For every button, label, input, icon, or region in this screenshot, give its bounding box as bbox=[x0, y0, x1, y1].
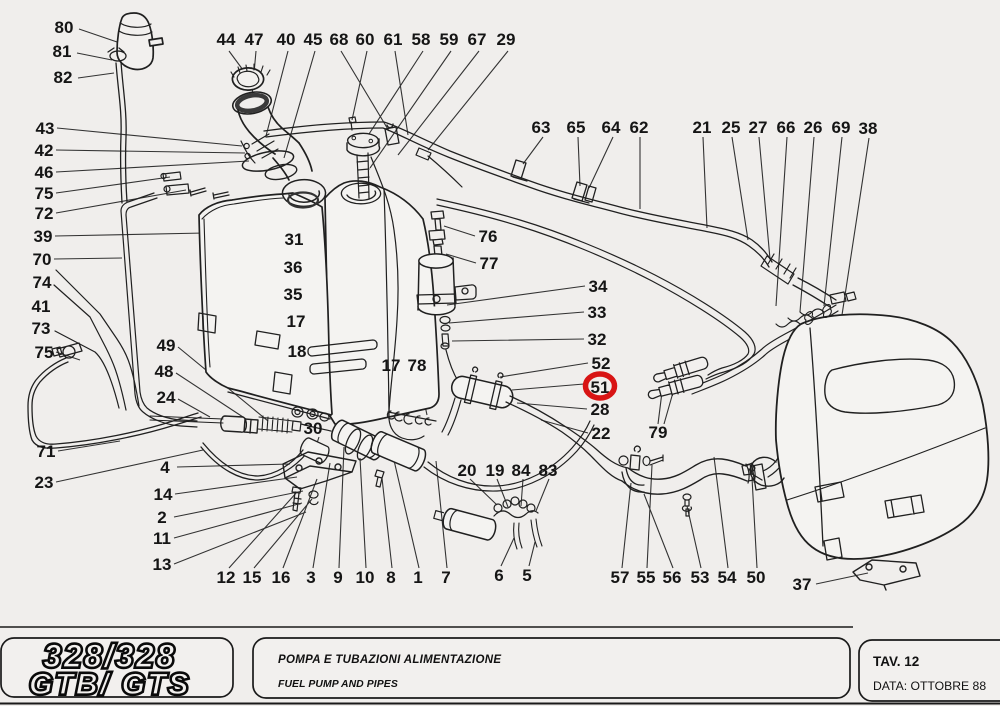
svg-text:32: 32 bbox=[588, 330, 607, 349]
svg-text:48: 48 bbox=[155, 362, 174, 381]
svg-text:83: 83 bbox=[539, 461, 558, 480]
svg-text:24: 24 bbox=[157, 388, 176, 407]
svg-text:68: 68 bbox=[330, 30, 349, 49]
svg-text:34: 34 bbox=[589, 277, 608, 296]
svg-text:69: 69 bbox=[832, 118, 851, 137]
svg-text:17: 17 bbox=[287, 312, 306, 331]
svg-text:63: 63 bbox=[532, 118, 551, 137]
svg-text:8: 8 bbox=[386, 568, 395, 587]
svg-text:81: 81 bbox=[53, 42, 72, 61]
svg-text:FUEL PUMP AND PIPES: FUEL PUMP AND PIPES bbox=[278, 679, 398, 690]
svg-text:75: 75 bbox=[35, 184, 54, 203]
svg-text:64: 64 bbox=[602, 118, 621, 137]
svg-text:47: 47 bbox=[245, 30, 264, 49]
svg-text:71: 71 bbox=[37, 442, 56, 461]
svg-text:14: 14 bbox=[154, 485, 173, 504]
svg-text:29: 29 bbox=[497, 30, 516, 49]
svg-text:5: 5 bbox=[522, 566, 531, 585]
svg-text:52: 52 bbox=[592, 354, 611, 373]
svg-text:49: 49 bbox=[157, 336, 176, 355]
svg-text:60: 60 bbox=[356, 30, 375, 49]
svg-text:65: 65 bbox=[567, 118, 586, 137]
svg-text:53: 53 bbox=[691, 568, 710, 587]
svg-text:7: 7 bbox=[441, 568, 450, 587]
svg-text:20: 20 bbox=[458, 461, 477, 480]
svg-text:POMPA E TUBAZIONI ALIMENTAZION: POMPA E TUBAZIONI ALIMENTAZIONE bbox=[278, 654, 501, 666]
svg-text:72: 72 bbox=[35, 204, 54, 223]
svg-text:67: 67 bbox=[468, 30, 487, 49]
svg-text:56: 56 bbox=[663, 568, 682, 587]
svg-text:DATA: OTTOBRE 88: DATA: OTTOBRE 88 bbox=[873, 679, 986, 693]
svg-text:25: 25 bbox=[722, 118, 741, 137]
svg-text:2: 2 bbox=[157, 508, 166, 527]
svg-text:57: 57 bbox=[611, 568, 630, 587]
svg-text:78: 78 bbox=[408, 356, 427, 375]
svg-text:21: 21 bbox=[693, 118, 712, 137]
svg-text:76: 76 bbox=[479, 227, 498, 246]
svg-text:59: 59 bbox=[440, 30, 459, 49]
svg-text:45: 45 bbox=[304, 30, 323, 49]
svg-text:44: 44 bbox=[217, 30, 236, 49]
svg-text:18: 18 bbox=[288, 342, 307, 361]
svg-text:77: 77 bbox=[480, 254, 499, 273]
svg-text:30: 30 bbox=[304, 419, 323, 438]
svg-text:43: 43 bbox=[36, 119, 55, 138]
svg-text:13: 13 bbox=[153, 555, 172, 574]
svg-text:35: 35 bbox=[284, 285, 303, 304]
svg-text:41: 41 bbox=[32, 297, 51, 316]
svg-text:28: 28 bbox=[591, 400, 610, 419]
svg-text:31: 31 bbox=[285, 230, 304, 249]
svg-text:54: 54 bbox=[718, 568, 737, 587]
svg-text:46: 46 bbox=[35, 163, 54, 182]
svg-text:6: 6 bbox=[494, 566, 503, 585]
svg-text:82: 82 bbox=[54, 68, 73, 87]
svg-text:GTB/ GTS: GTB/ GTS bbox=[29, 668, 191, 701]
svg-text:17: 17 bbox=[382, 356, 401, 375]
svg-text:62: 62 bbox=[630, 118, 649, 137]
svg-text:12: 12 bbox=[217, 568, 236, 587]
svg-text:19: 19 bbox=[486, 461, 505, 480]
svg-text:10: 10 bbox=[356, 568, 375, 587]
svg-text:38: 38 bbox=[859, 119, 878, 138]
svg-text:16: 16 bbox=[272, 568, 291, 587]
svg-text:11: 11 bbox=[153, 529, 171, 548]
svg-text:73: 73 bbox=[32, 319, 51, 338]
svg-text:50: 50 bbox=[747, 568, 766, 587]
svg-text:15: 15 bbox=[243, 568, 262, 587]
svg-text:37: 37 bbox=[793, 575, 812, 594]
svg-text:27: 27 bbox=[749, 118, 768, 137]
svg-text:22: 22 bbox=[592, 424, 611, 443]
svg-text:55: 55 bbox=[637, 568, 656, 587]
svg-text:80: 80 bbox=[55, 18, 74, 37]
svg-text:39: 39 bbox=[34, 227, 53, 246]
svg-text:9: 9 bbox=[333, 568, 342, 587]
svg-text:42: 42 bbox=[35, 141, 54, 160]
svg-text:33: 33 bbox=[588, 303, 607, 322]
svg-text:4: 4 bbox=[160, 458, 170, 477]
svg-text:TAV. 12: TAV. 12 bbox=[873, 654, 919, 669]
svg-text:66: 66 bbox=[777, 118, 796, 137]
svg-text:23: 23 bbox=[35, 473, 54, 492]
svg-text:26: 26 bbox=[804, 118, 823, 137]
svg-text:3: 3 bbox=[306, 568, 315, 587]
svg-text:61: 61 bbox=[384, 30, 403, 49]
svg-text:74: 74 bbox=[33, 273, 52, 292]
svg-text:58: 58 bbox=[412, 30, 431, 49]
svg-text:36: 36 bbox=[284, 258, 303, 277]
svg-text:70: 70 bbox=[33, 250, 52, 269]
svg-text:84: 84 bbox=[512, 461, 531, 480]
svg-text:1: 1 bbox=[413, 568, 422, 587]
svg-text:40: 40 bbox=[277, 30, 296, 49]
svg-text:75: 75 bbox=[35, 343, 54, 362]
svg-text:79: 79 bbox=[649, 423, 668, 442]
